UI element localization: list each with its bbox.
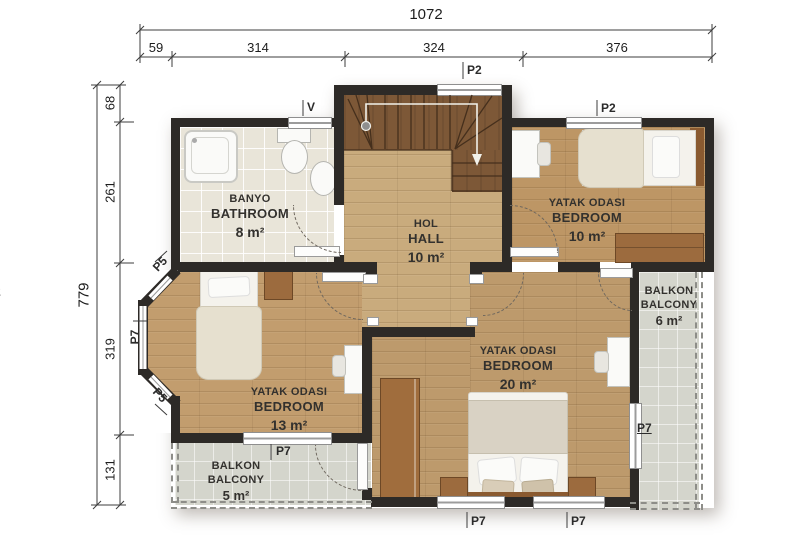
door-leaf-balcony6 (600, 268, 633, 278)
label-p7-bay: P7 (128, 330, 142, 345)
room-name-en: BALCONY (641, 298, 698, 312)
dim-top-seg-2: 314 (247, 40, 269, 55)
wall (334, 85, 344, 205)
room-area: 20 m² (480, 375, 556, 393)
dim-top-total: 1072 (409, 6, 442, 23)
wall (171, 262, 377, 272)
room-area: 10 m² (408, 248, 445, 266)
desk-chair (594, 351, 609, 373)
window-p7-bottom-2 (533, 496, 605, 509)
dim-left-seg-3: 319 (103, 338, 118, 360)
shower-drain (192, 138, 197, 143)
door-leaf-bedroom10 (510, 247, 559, 257)
door-leaf-bathroom (294, 246, 340, 257)
room-label-bedroom-20: YATAK ODASI BEDROOM 20 m² (480, 344, 556, 393)
dim-top-seg-4: 376 (606, 40, 628, 55)
label-vent: V (307, 100, 315, 114)
door-jamb (363, 274, 378, 284)
bed-duvet (578, 128, 644, 188)
room-name-tr: YATAK ODASI (251, 385, 327, 399)
railing-balcony6-bottom (630, 502, 700, 510)
room-area: 8 m² (211, 223, 289, 241)
room-name-en: BEDROOM (251, 399, 327, 415)
dim-left-total: 779 (76, 282, 93, 307)
window-v (288, 117, 332, 129)
railing-balcony5-bottom (171, 501, 372, 509)
wall (362, 327, 475, 337)
room-name-en: BATHROOM (211, 206, 289, 222)
desk (508, 130, 540, 178)
room-name-tr: BALKON (641, 284, 698, 298)
room-name-en: BEDROOM (549, 210, 625, 226)
dim-left-seg-1: 68 (103, 96, 118, 110)
desk-chair (332, 355, 346, 377)
desk-chair (537, 142, 551, 166)
room-label-hall: HOL HALL 10 m² (408, 217, 445, 266)
label-p7-bottom-1: P7 (471, 514, 486, 528)
single-bed (194, 266, 262, 380)
wall (631, 262, 714, 272)
wall (171, 118, 180, 273)
label-edge-partial: 2 (0, 283, 1, 299)
room-name-tr: YATAK ODASI (480, 344, 556, 358)
room-name-tr: BANYO (211, 192, 289, 206)
label-p2-bedroom: P2 (601, 101, 616, 115)
window-p7-balcony6 (629, 403, 642, 469)
dim-left-seg-4: 131 (103, 459, 118, 481)
staircase-lower-run (452, 150, 502, 192)
room-label-bathroom: BANYO BATHROOM 8 m² (211, 192, 289, 241)
shower-tray (184, 130, 238, 183)
double-bed (468, 392, 568, 502)
wall (630, 272, 639, 405)
label-p7-bottom-2: P7 (571, 514, 586, 528)
window-p7-bottom-1 (437, 496, 505, 509)
label-p7-balcony6: P7 (637, 421, 652, 435)
bed-blanket (468, 400, 568, 454)
room-name-en: BEDROOM (480, 358, 556, 374)
dresser (615, 233, 704, 263)
stool (264, 271, 293, 300)
room-area: 13 m² (251, 416, 327, 434)
door-jamb (469, 274, 484, 284)
bed-pillow (652, 136, 680, 178)
door-leaf-bedroom13 (322, 272, 366, 282)
dim-top-seg-1: 59 (149, 40, 163, 55)
room-label-bedroom-10: YATAK ODASI BEDROOM 10 m² (549, 196, 625, 245)
desk (344, 345, 364, 394)
window-p2-stair (437, 84, 502, 96)
bed-pillow (208, 276, 251, 298)
wall (362, 327, 372, 443)
bed-duvet (196, 306, 262, 380)
dim-top-seg-3: 324 (423, 40, 445, 55)
label-p7-balcony5: P7 (276, 444, 291, 458)
desk (607, 337, 630, 387)
window-p2-bedroom (566, 117, 642, 129)
room-name-tr: YATAK ODASI (549, 196, 625, 210)
room-label-balcony-5: BALKON BALCONY 5 m² (208, 459, 265, 504)
room-area: 6 m² (641, 313, 698, 330)
room-name-en: HALL (408, 231, 445, 247)
label-p2-stair: P2 (467, 63, 482, 77)
dresser-line (616, 247, 703, 248)
wall (705, 118, 714, 272)
toilet-bowl (281, 140, 308, 174)
staircase-upper-run (344, 94, 502, 150)
room-area: 10 m² (549, 227, 625, 245)
room-area: 5 m² (208, 488, 265, 505)
wall (558, 262, 600, 272)
door-jamb (367, 317, 379, 326)
floor-plan: 1072 59 314 324 376 779 68 261 319 131 V… (0, 0, 800, 554)
shower-inner (191, 137, 229, 174)
dim-left-seg-2: 261 (103, 181, 118, 203)
room-label-balcony-6: BALKON BALCONY 6 m² (641, 284, 698, 329)
railing-balcony5-left (171, 443, 179, 503)
door-jamb (466, 317, 478, 326)
room-name-tr: BALKON (208, 459, 265, 473)
wardrobe-edge (414, 379, 416, 501)
room-name-en: BALCONY (208, 473, 265, 487)
single-bed (558, 126, 706, 188)
wardrobe (380, 378, 420, 502)
floor-balcony-5 (175, 442, 371, 505)
room-name-tr: HOL (408, 217, 445, 231)
door-leaf-balcony5 (357, 443, 368, 490)
wall (502, 85, 512, 272)
room-label-bedroom-13: YATAK ODASI BEDROOM 13 m² (251, 385, 327, 434)
sink (310, 161, 337, 196)
